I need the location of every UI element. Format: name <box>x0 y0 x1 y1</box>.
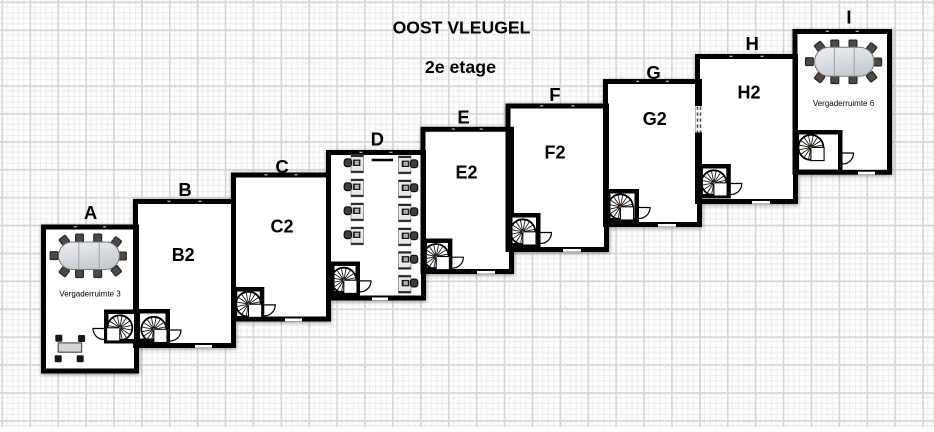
svg-text:B2: B2 <box>172 245 195 265</box>
svg-text:H: H <box>746 33 759 54</box>
svg-text:E2: E2 <box>455 163 477 183</box>
svg-text:G2: G2 <box>643 109 667 129</box>
svg-text:A: A <box>84 202 97 223</box>
svg-text:I: I <box>846 7 851 28</box>
svg-text:Vergaderruimte 6: Vergaderruimte 6 <box>813 99 875 108</box>
svg-text:H2: H2 <box>737 82 760 102</box>
svg-text:C: C <box>275 156 288 177</box>
svg-text:F2: F2 <box>544 143 565 163</box>
svg-text:G: G <box>646 62 660 83</box>
svg-text:F: F <box>549 84 560 105</box>
svg-text:2e etage: 2e etage <box>425 57 496 77</box>
svg-text:Vergaderruimte 3: Vergaderruimte 3 <box>59 290 121 299</box>
svg-text:D: D <box>371 129 384 150</box>
svg-text:OOST VLEUGEL: OOST VLEUGEL <box>393 18 531 38</box>
svg-text:C2: C2 <box>270 217 293 237</box>
svg-text:E: E <box>457 106 469 127</box>
svg-text:B: B <box>178 179 191 200</box>
